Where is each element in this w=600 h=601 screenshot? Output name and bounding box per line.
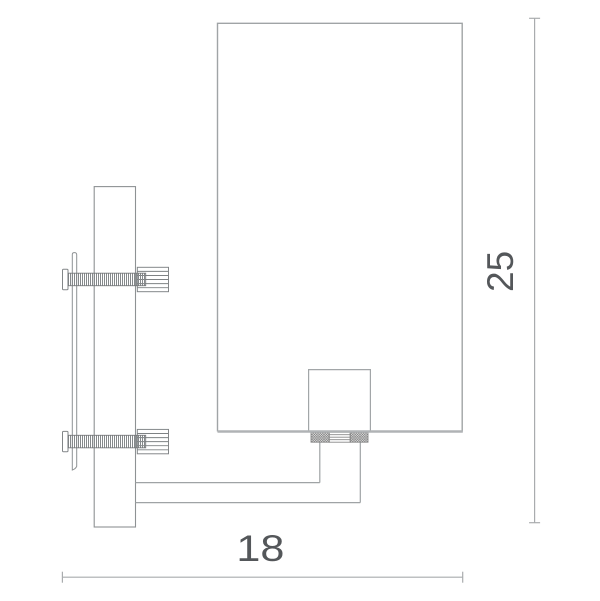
svg-text:18: 18	[236, 528, 284, 569]
svg-text:25: 25	[480, 251, 521, 292]
